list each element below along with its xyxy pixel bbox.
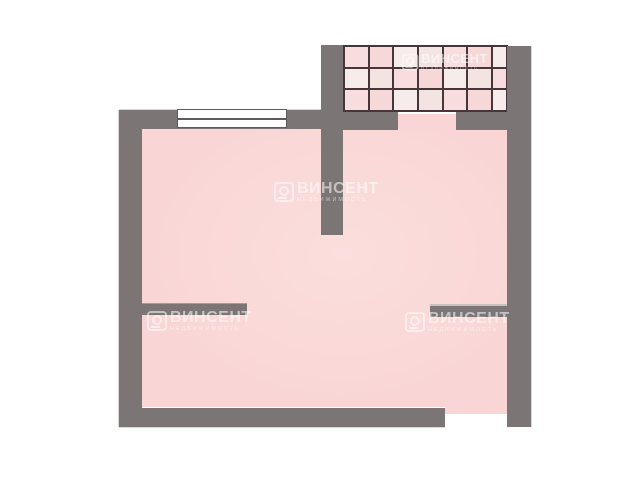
wall-under-balcony-right-segment <box>456 112 507 130</box>
balcony-tile <box>444 69 467 89</box>
balcony-tile <box>370 69 393 89</box>
balcony-tile <box>419 69 442 89</box>
balcony-tile <box>419 90 442 110</box>
balcony-tile <box>493 90 506 110</box>
balcony-tile <box>370 47 393 67</box>
balcony-tile <box>493 69 506 89</box>
wall-balcony-left-and-center-partition <box>321 45 343 235</box>
window-pane <box>178 110 286 118</box>
balcony-tile <box>394 47 417 67</box>
wall-bottom <box>119 408 445 427</box>
balcony-tile <box>468 47 491 67</box>
balcony-tile <box>468 90 491 110</box>
interior-partition-right <box>430 304 507 317</box>
balcony-tile <box>370 90 393 110</box>
balcony-tile <box>493 47 506 67</box>
wall-left <box>119 110 142 427</box>
balcony-door-opening-overlay <box>398 114 456 130</box>
wall-under-balcony-left-segment <box>343 112 398 130</box>
entry-door-opening <box>445 407 507 414</box>
balcony-tile <box>419 47 442 67</box>
balcony-tile <box>394 69 417 89</box>
window-symbol <box>177 109 287 128</box>
balcony-tiled-area <box>343 45 508 112</box>
balcony-tile <box>345 69 368 89</box>
balcony-tile <box>394 90 417 110</box>
balcony-tile <box>468 69 491 89</box>
balcony-tile <box>345 90 368 110</box>
floor-plan: ВИНСЕНТ НЕДВИЖИМОСТЬ ВИНСЕНТ НЕДВИЖИМОСТ… <box>0 0 640 480</box>
balcony-tile <box>345 47 368 67</box>
wall-right <box>507 46 531 427</box>
window-pane <box>178 120 286 128</box>
balcony-tile <box>444 90 467 110</box>
interior-partition-left <box>142 303 247 315</box>
balcony-tile <box>444 47 467 67</box>
